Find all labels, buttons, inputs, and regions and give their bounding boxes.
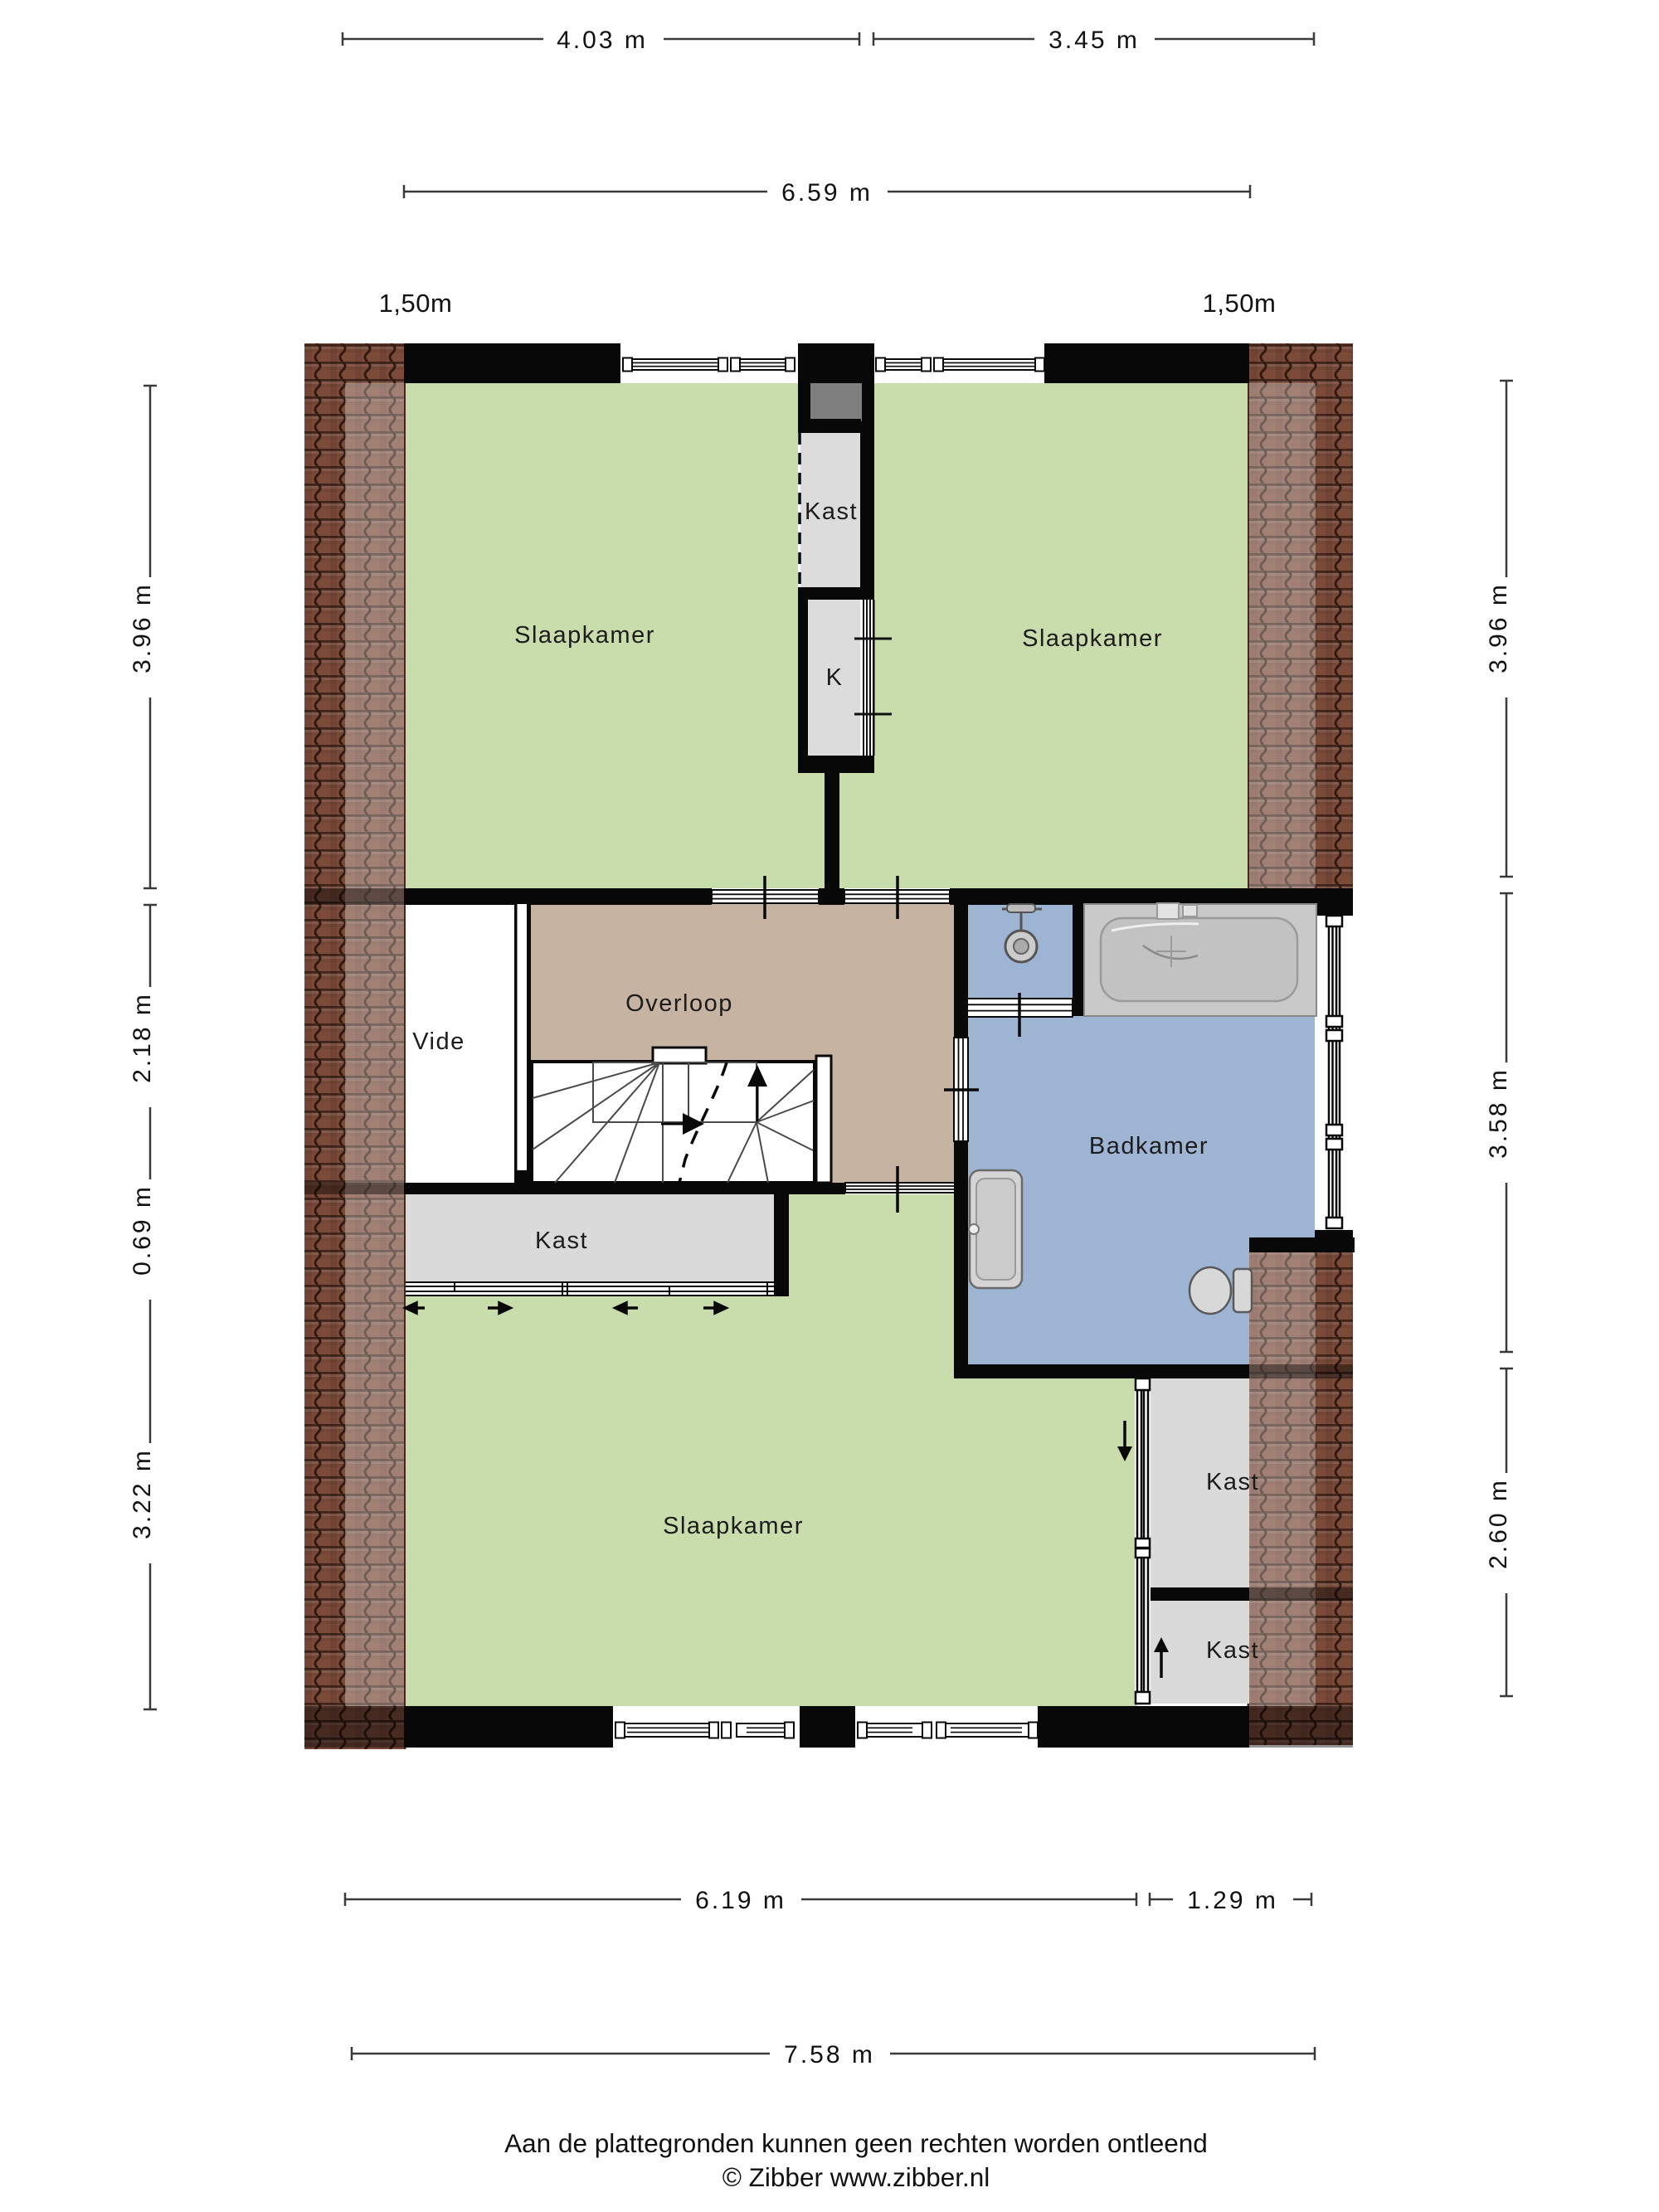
svg-text:K: K <box>826 664 844 691</box>
svg-text:© Zibber www.zibber.nl: © Zibber www.zibber.nl <box>722 2162 990 2192</box>
svg-text:Kast: Kast <box>535 1228 588 1254</box>
svg-text:Slaapkamer: Slaapkamer <box>663 1513 804 1539</box>
svg-text:2.60 m: 2.60 m <box>1485 1478 1512 1569</box>
svg-text:Slaapkamer: Slaapkamer <box>514 622 655 649</box>
svg-text:0.69 m: 0.69 m <box>129 1184 156 1276</box>
svg-text:Badkamer: Badkamer <box>1089 1133 1209 1159</box>
svg-text:1,50m: 1,50m <box>1203 289 1277 318</box>
svg-text:6.19 m: 6.19 m <box>695 1887 786 1914</box>
svg-text:3.58 m: 3.58 m <box>1485 1067 1512 1159</box>
svg-text:Aan de plattegronden kunnen ge: Aan de plattegronden kunnen geen rechten… <box>504 2128 1208 2158</box>
svg-text:Kast: Kast <box>1206 1637 1259 1664</box>
svg-text:1,50m: 1,50m <box>379 289 453 318</box>
svg-text:3.45 m: 3.45 m <box>1048 27 1140 54</box>
svg-text:4.03 m: 4.03 m <box>557 27 648 54</box>
svg-text:Kast: Kast <box>805 498 858 525</box>
svg-text:7.58 m: 7.58 m <box>784 2041 875 2069</box>
svg-text:2.18 m: 2.18 m <box>129 992 156 1083</box>
svg-text:6.59 m: 6.59 m <box>781 179 873 207</box>
svg-text:3.22 m: 3.22 m <box>129 1448 156 1539</box>
svg-text:Kast: Kast <box>1206 1469 1259 1495</box>
svg-text:Overloop: Overloop <box>625 990 733 1017</box>
svg-text:3.96 m: 3.96 m <box>1485 582 1512 673</box>
svg-text:3.96 m: 3.96 m <box>129 582 156 673</box>
svg-text:1.29 m: 1.29 m <box>1187 1887 1278 1914</box>
svg-text:Slaapkamer: Slaapkamer <box>1022 625 1163 652</box>
svg-text:Vide: Vide <box>412 1028 465 1055</box>
